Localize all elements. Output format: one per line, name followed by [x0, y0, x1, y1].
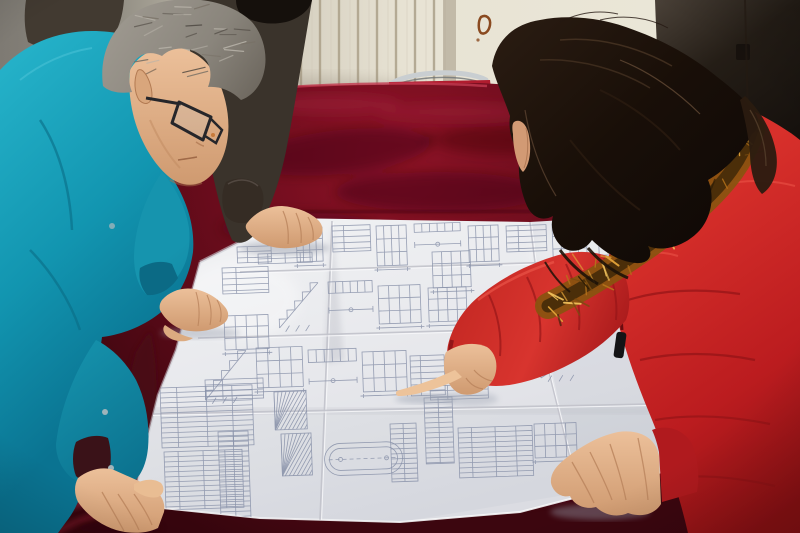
photo-canvas: Photograph: two people leaning over a la… [0, 0, 800, 533]
vignette-overlay [0, 0, 800, 533]
photo-scene: Photograph: two people leaning over a la… [0, 0, 800, 533]
